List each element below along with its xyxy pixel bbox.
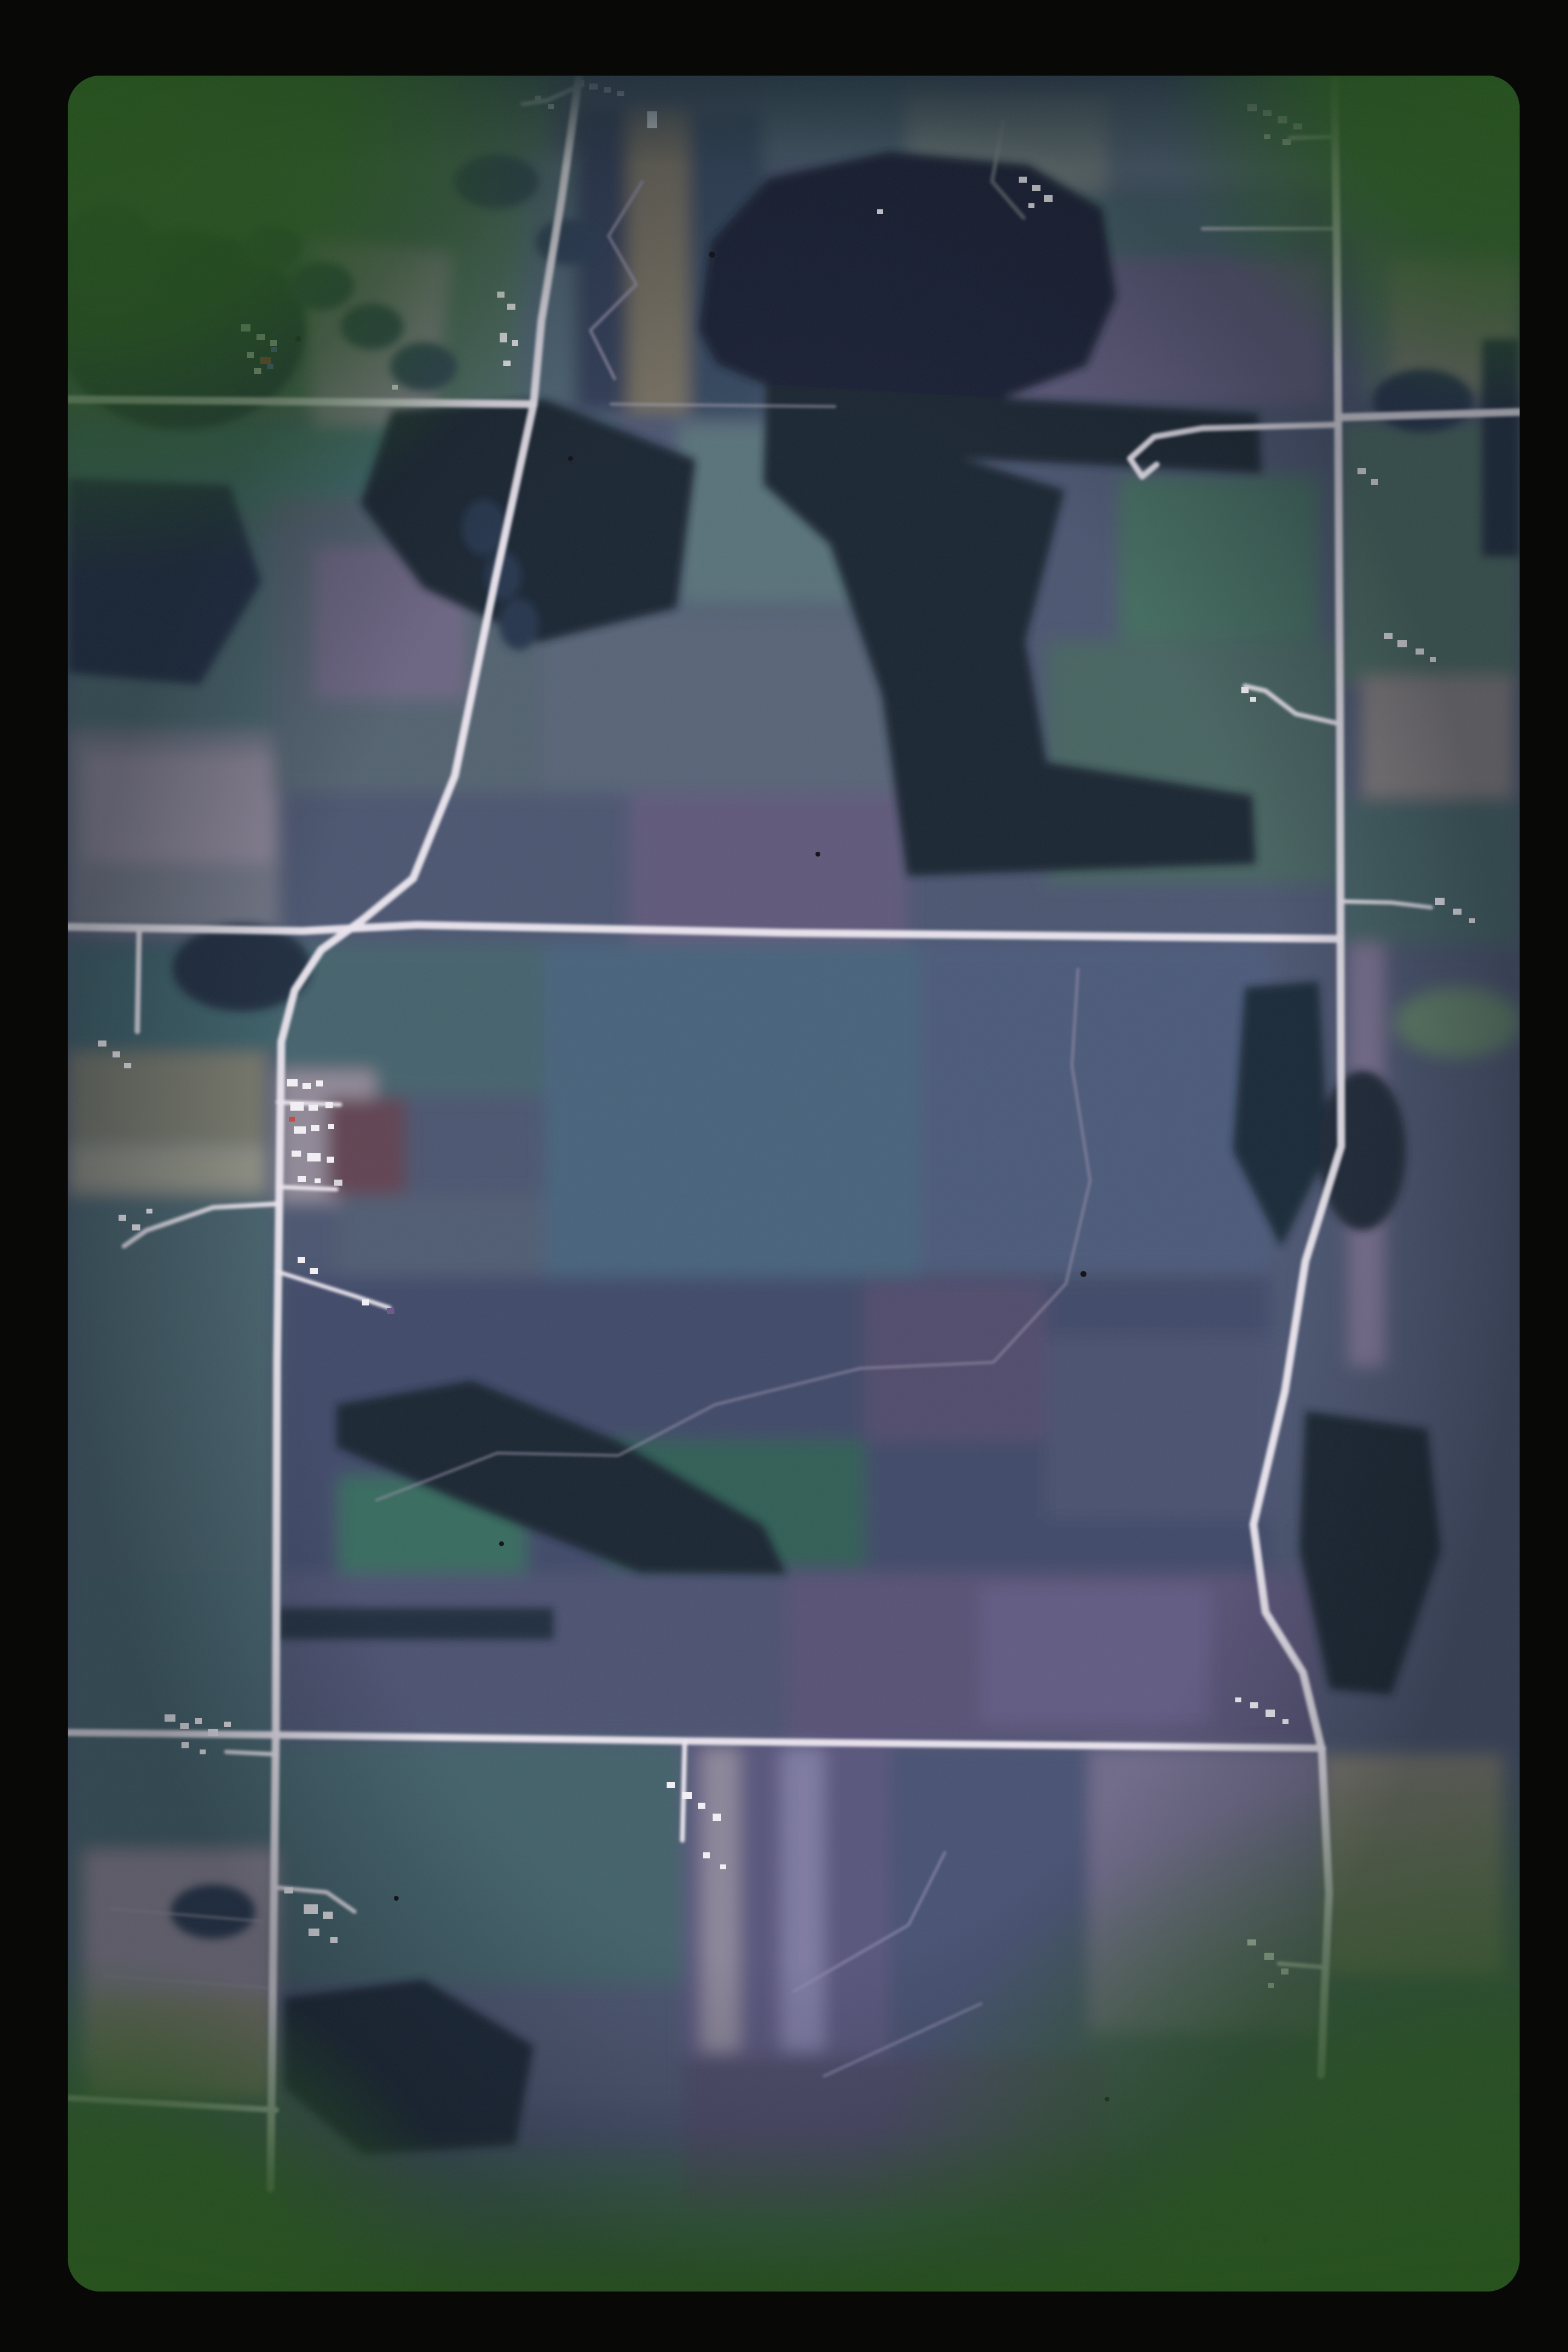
aerial-photograph [0,0,1568,2352]
film-grain [68,76,1520,2292]
aerial-photo-slide-scan [0,0,1568,2352]
slide-mount [0,0,1568,2352]
